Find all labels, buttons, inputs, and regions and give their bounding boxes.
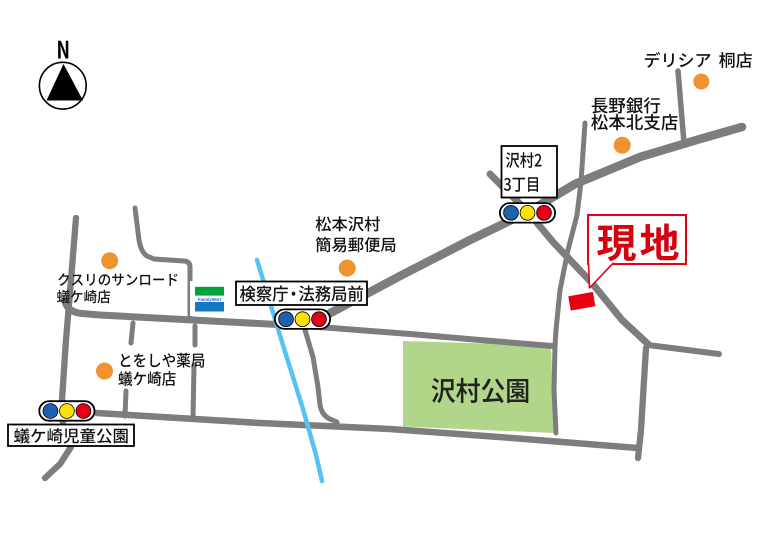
svg-text:FamilyMart: FamilyMart bbox=[198, 297, 222, 302]
